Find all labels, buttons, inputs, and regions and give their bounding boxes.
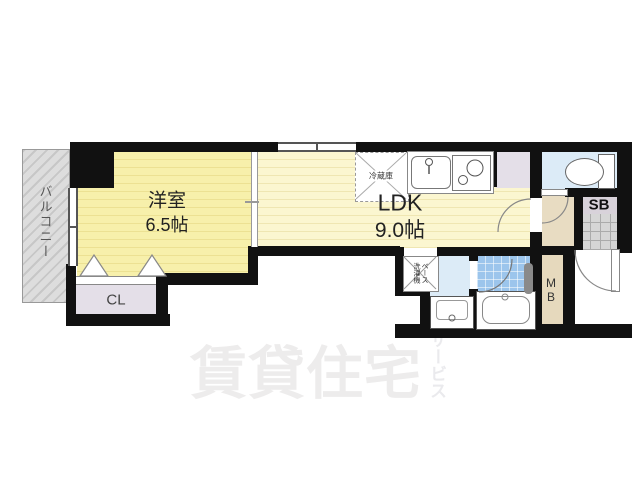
toilet-door-arc: [542, 197, 568, 223]
ldk-label: LDK: [378, 190, 423, 217]
folding-door-triangle: [80, 255, 108, 276]
balcony-label: バルコニー: [36, 185, 55, 260]
western-room-size: 6.5帖: [145, 211, 188, 237]
bathroom-door-arc: [479, 259, 512, 292]
meter-box-label-m: M: [546, 276, 556, 290]
laundry-label-left: 洗濯機: [411, 263, 421, 284]
closet-label: CL: [106, 292, 125, 309]
burner-large: [467, 160, 483, 176]
tub-drain: [502, 294, 508, 300]
symbol-overlay: [0, 0, 640, 480]
folding-door-triangle: [138, 255, 166, 276]
shoe-box-label: SB: [589, 197, 610, 214]
ldk-size: 9.0帖: [375, 214, 425, 244]
burner-small: [459, 176, 468, 185]
basin-faucet: [449, 315, 455, 321]
fridge-label: 冷蔵庫: [368, 171, 394, 182]
ldk-door-arc: [498, 199, 531, 232]
sink-faucet: [426, 159, 433, 166]
meter-box-label-b: B: [547, 290, 555, 304]
western-room-label: 洋室: [148, 186, 186, 213]
floorplan-canvas: 賃貸住宅 サービス: [0, 0, 640, 480]
entrance-door-arc: [575, 250, 616, 291]
